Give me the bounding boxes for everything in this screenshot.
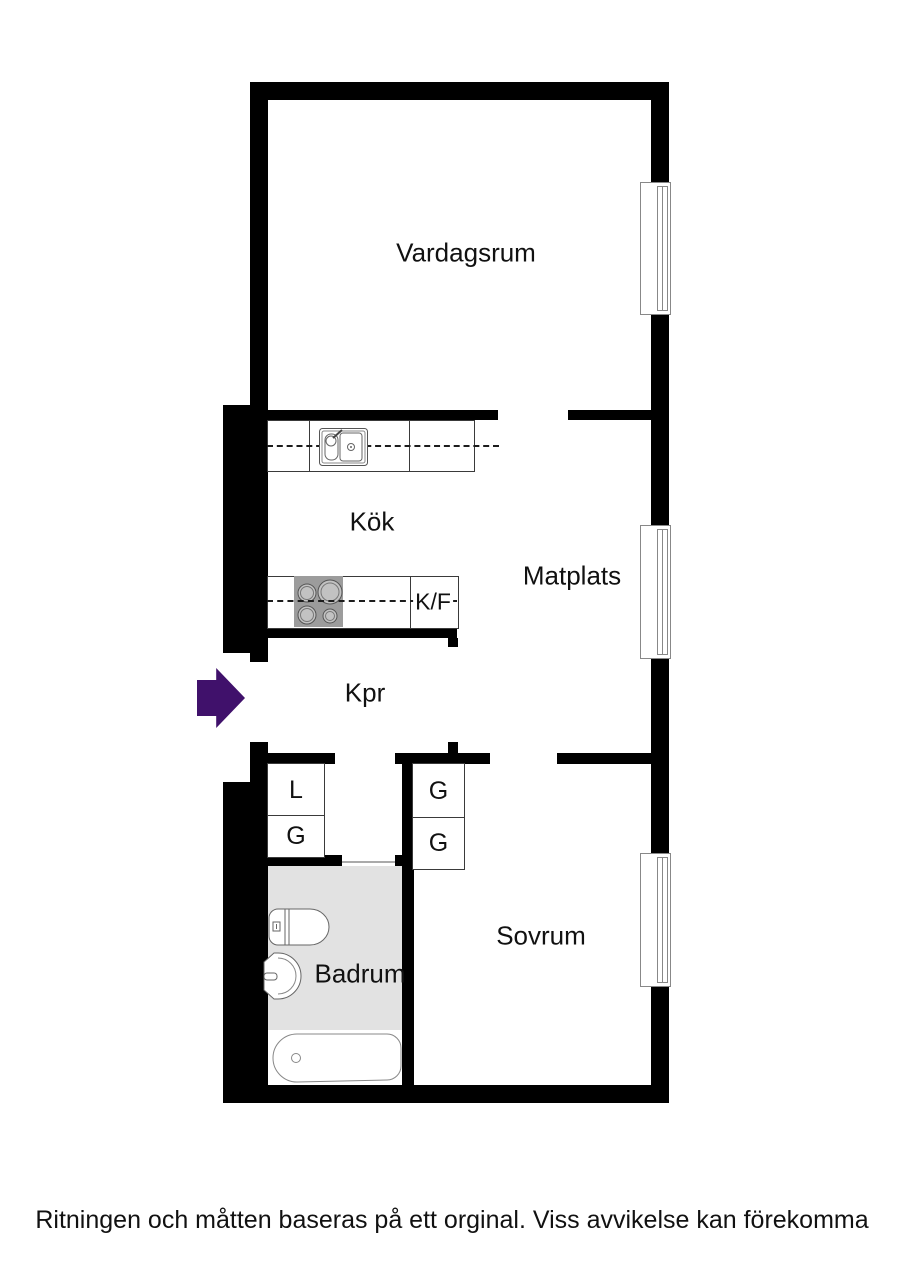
closet-g-right-1: G: [412, 763, 465, 819]
badrum-door-threshold: [342, 861, 395, 863]
kitchen-sink-icon: [319, 428, 368, 466]
floor-plan: K/F L G G G Vardagsrum Kök Matplats Kpr …: [0, 0, 904, 1280]
room-label-matplats: Matplats: [523, 561, 621, 592]
counter-divider: [410, 577, 411, 628]
wall-kitchen-top: [265, 410, 498, 420]
wall-kitchen-bottom-stub: [448, 638, 458, 647]
fridge-freezer-label: K/F: [413, 589, 453, 616]
window-glass-icon: [657, 529, 668, 655]
room-label-kok: Kök: [350, 507, 395, 538]
wall-entry-stub-top: [250, 653, 268, 662]
room-label-badrum: Badrum: [314, 959, 405, 990]
wall-exterior-top: [250, 82, 669, 100]
wall-exterior-left-upper: [250, 82, 268, 405]
counter-dashed-line: [267, 445, 499, 447]
entrance-arrow-icon: [197, 668, 245, 728]
disclaimer-text: Ritningen och måtten baseras på ett orgi…: [0, 1206, 904, 1235]
window-glass-line: [662, 187, 663, 310]
closet-g-left: G: [267, 815, 325, 858]
wall-exterior-bottom: [223, 1085, 669, 1103]
window-glass-icon: [657, 857, 668, 983]
closet-label: G: [286, 822, 305, 851]
closet-label: L: [289, 776, 303, 805]
closet-g-right-2: G: [412, 817, 465, 870]
wall-exterior-left-kitchen: [223, 405, 268, 653]
window-glass-line: [662, 530, 663, 654]
wall-closet-right-stub: [448, 742, 458, 753]
window-matplats: [640, 525, 671, 659]
wall-sovrum-top: [557, 753, 652, 764]
room-label-kpr: Kpr: [345, 678, 385, 709]
room-label-vardagsrum: Vardagsrum: [396, 238, 536, 269]
window-sovrum: [640, 853, 671, 987]
window-glass-icon: [657, 186, 668, 311]
wall-exterior-left-lower: [223, 782, 268, 1085]
window-vardagsrum: [640, 182, 671, 315]
badrum-floor: [268, 866, 402, 1030]
room-label-sovrum: Sovrum: [496, 921, 586, 952]
closet-label: G: [429, 829, 448, 858]
closet-l: L: [267, 763, 325, 817]
bathtub-icon: [271, 1033, 403, 1083]
toilet-icon: [268, 908, 330, 946]
washbasin-icon: [263, 952, 303, 1000]
closet-label: G: [429, 777, 448, 806]
window-glass-line: [662, 858, 663, 982]
wall-matplats-top: [568, 410, 652, 420]
